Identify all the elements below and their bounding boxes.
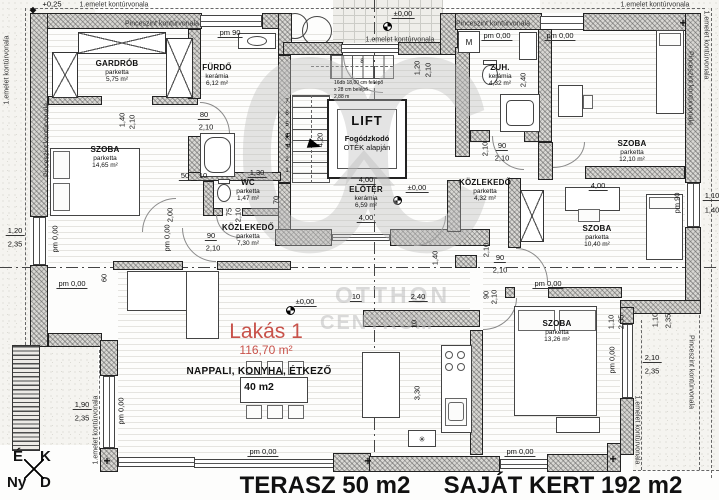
room-name: SZOBA: [91, 146, 120, 155]
wardrobe-icon: [52, 52, 78, 98]
room-name: GARDRÓB: [96, 60, 139, 69]
room-label: SZOBAparketta12,10 m²: [618, 140, 647, 163]
room-area: 4,32 m²: [459, 195, 511, 202]
dim-label: ±0,00: [294, 297, 317, 307]
dim-label: pm 0,00: [163, 224, 172, 251]
washbasin-bowl: [247, 36, 267, 46]
dim-label: ±0,00: [392, 9, 415, 19]
survey-cross-icon: +: [103, 454, 110, 468]
room-label: KÖZLEKEDŐparketta4,32 m²: [459, 179, 511, 202]
dim-label: 60: [100, 274, 109, 282]
room-floor: parketta: [96, 69, 139, 76]
room-label: SZOBAparketta13,26 m²: [543, 320, 572, 343]
room-floor: kerámia: [488, 73, 511, 80]
dim-label: 2,10: [482, 243, 491, 258]
stair-number: 3: [285, 145, 288, 151]
room-area: 5,75 m²: [96, 76, 139, 83]
wardrobe-icon: [520, 190, 544, 242]
dim-label: 90: [494, 253, 506, 263]
lift-note: OTÉK alapján: [344, 143, 391, 152]
wall-segment: [538, 29, 552, 142]
compass-north: É: [13, 448, 23, 465]
contour-label: Pinceszint kontúrvonala: [688, 335, 695, 409]
shower-tray-inner: [506, 100, 534, 126]
dim-label: 10: [410, 320, 419, 328]
dim-label: 2,40: [409, 292, 428, 302]
dim-label: pm 0,00: [504, 447, 535, 457]
dim-label: pm 90: [673, 193, 682, 214]
room-floor: parketta: [91, 155, 120, 162]
wardrobe-icon: [166, 38, 193, 98]
survey-cross-icon: +: [609, 452, 616, 466]
apartment-title: Lakás 1: [229, 320, 303, 344]
contour-label: Pinceszint kontúrvonala: [125, 21, 199, 28]
contour-label: 1.emelet kontúrvonala: [634, 396, 641, 465]
wall-segment: [30, 265, 48, 347]
room-name: FÜRDŐ: [202, 64, 231, 73]
wall-segment: [470, 130, 490, 142]
section-line-horizontal: [0, 267, 719, 268]
cooktop-burner-icon: [457, 351, 465, 359]
cooktop-burner-icon: [445, 351, 453, 359]
room-area: 7,30 m²: [222, 240, 274, 247]
window: [622, 324, 633, 398]
living-room-label: NAPPALI, KONYHA, ÉTKEZŐ: [186, 366, 331, 377]
dim-label: 2,35: [617, 315, 626, 330]
room-area: 6,12 m²: [202, 80, 231, 87]
dim-label: 2,10: [495, 154, 510, 163]
dim-label: +0,25: [43, 0, 62, 9]
wall-segment: [398, 42, 442, 55]
wall-segment: [369, 456, 500, 472]
room-floor: parketta: [618, 149, 647, 156]
room-label: WCparketta1,47 m²: [236, 179, 260, 202]
dim-label: pm 0,00: [56, 279, 87, 289]
washing-machine-label: M: [466, 38, 473, 47]
window: [33, 217, 46, 265]
terrace-window: [500, 459, 548, 469]
dim-label: 10: [197, 171, 209, 181]
pillow: [53, 183, 70, 211]
pillow: [659, 33, 681, 46]
entry-threshold: [332, 234, 390, 241]
room-area: 14,65 m²: [91, 162, 120, 169]
dim-label: 70: [272, 196, 281, 204]
bathtub-inner: [204, 137, 231, 173]
dim-label: 2,10: [199, 123, 214, 132]
dim-label: 1,30: [248, 168, 267, 178]
room-name: SZOBA: [543, 320, 572, 329]
dim-label: 75: [225, 208, 234, 216]
level-marker-icon: [286, 306, 295, 315]
wall-segment: [363, 310, 480, 327]
terrace-window: [118, 457, 195, 467]
dim-label: 2,10: [128, 115, 137, 130]
survey-cross-icon: +: [364, 454, 371, 468]
contour-label: 1.emelet kontúrvonala: [80, 2, 149, 9]
room-name: SZOBA: [583, 225, 612, 234]
star-icon: ✳: [419, 435, 426, 444]
dim-label: pm 0,00: [481, 31, 512, 41]
dim-label: 2,10: [643, 353, 662, 363]
room-area: 4,32 m²: [488, 80, 511, 87]
contour-label: 1.emelet kontúrvonala: [703, 11, 710, 80]
dim-label: 1,40: [118, 113, 127, 128]
room-floor: parketta: [459, 188, 511, 195]
dim-label: 90: [496, 141, 508, 151]
dim-label: 1,40: [705, 206, 719, 215]
room-label: ELŐTÉRkerámia6,59 m²: [349, 186, 383, 209]
lift-label: LIFT: [351, 113, 382, 128]
kitchen-sink-inner: [448, 402, 464, 421]
wall-segment: [113, 261, 183, 270]
dim-label: 50: [179, 171, 191, 181]
room-name: KÖZLEKEDŐ: [222, 224, 274, 233]
stair-number: 2: [285, 157, 288, 163]
dim-label: pm 0,00: [544, 31, 575, 41]
room-name: SZOBA: [618, 140, 647, 149]
cabinet: [519, 32, 537, 60]
wall-segment: [620, 398, 634, 455]
wall-segment: [242, 208, 281, 216]
dim-label: 2,40: [519, 73, 528, 88]
stair-number: 6: [285, 111, 288, 117]
deck-boards: [12, 345, 40, 451]
chair: [246, 405, 262, 419]
side-table: ✳: [408, 430, 436, 447]
wall-segment: [275, 229, 332, 246]
corner-marker-icon: ◆: [30, 5, 37, 16]
level-marker-icon: [393, 196, 402, 205]
dim-label: 1,90: [73, 400, 92, 410]
wall-segment: [278, 183, 291, 233]
dim-label: pm 0,00: [608, 346, 617, 373]
contour-label: Pinceszint kontúrvonala: [44, 103, 51, 177]
contour-label: 1.emelet kontúrvonala: [4, 36, 11, 105]
garden-label: SAJÁT KERT 192 m2: [444, 472, 683, 500]
dim-label: 2,10: [493, 266, 508, 275]
room-name: ELŐTÉR: [349, 186, 383, 195]
dim-label: 4,00: [357, 175, 376, 185]
stairs-note: 2,88 m: [334, 94, 349, 100]
stairs-note: 16db 18,00 cm fellépő: [334, 80, 383, 86]
wall-segment: [585, 166, 685, 179]
level-marker-icon: [383, 22, 392, 31]
desk: [558, 85, 583, 117]
contour-label: 1.emelet kontúrvonala: [366, 37, 435, 44]
wall-segment: [217, 261, 291, 270]
room-label: FÜRDŐkerámia6,12 m²: [202, 64, 231, 87]
window: [200, 15, 262, 27]
dim-label: pm 0,00: [51, 225, 60, 252]
dim-label: pm 0,00: [247, 447, 278, 457]
room-area: 1,47 m²: [236, 195, 260, 202]
contour-label: Pinceszint kontúrvonala: [687, 51, 694, 125]
wall-segment: [583, 13, 687, 31]
room-floor: kerámia: [202, 73, 231, 80]
dim-label: 4,20: [316, 133, 325, 148]
room-label: ZUH.kerámia4,32 m²: [488, 64, 511, 87]
terrace-window: [194, 459, 334, 468]
stairs-walk-line: [311, 66, 393, 67]
dim-label: 2,10: [206, 244, 221, 253]
dim-label: 2,35: [8, 240, 23, 249]
chair: [583, 95, 593, 109]
compass-cross-icon: [24, 459, 44, 479]
stair-number: 8: [360, 59, 363, 65]
contour-label: Pinceszint kontúrvonala: [456, 21, 530, 28]
dim-label: 2,35: [664, 314, 673, 329]
dim-label: 2,10: [481, 142, 490, 157]
cooktop-burner-icon: [457, 363, 465, 371]
dim-label: pm 0,00: [117, 397, 126, 424]
dim-label: 4,00: [589, 181, 608, 191]
room-area: 10,40 m²: [583, 241, 612, 248]
apartment-area: 116,70 m²: [239, 343, 292, 357]
window: [540, 16, 584, 30]
room-area: 6,59 m²: [349, 202, 383, 209]
dim-label: 2,00: [166, 208, 175, 223]
cooktop-burner-icon: [445, 363, 453, 371]
dim-label: 1,20: [413, 61, 422, 76]
dim-label: 10: [350, 292, 362, 302]
room-label: SZOBAparketta14,65 m²: [91, 146, 120, 169]
room-label: SZOBAparketta10,40 m²: [583, 225, 612, 248]
contour-label: 1.emelet kontúrvonala: [93, 396, 100, 465]
wall-segment: [278, 55, 291, 183]
stair-number: 7: [285, 99, 288, 105]
contour-label: 1.emelet kontúrvonala: [621, 2, 690, 9]
sofa-chaise: [186, 271, 219, 339]
room-floor: parketta: [222, 233, 274, 240]
dim-label: ±0,00: [406, 183, 429, 193]
room-floor: parketta: [543, 329, 572, 336]
stairs-note: x 28 cm belépő: [334, 87, 368, 93]
living-room-area: 40 m2: [244, 381, 274, 393]
dim-label: pm 0,00: [532, 279, 563, 289]
room-name: WC: [236, 179, 260, 188]
room-name: KÖZLEKEDŐ: [459, 179, 511, 188]
dim-label: 4,00: [357, 213, 376, 223]
kitchen-island: [362, 352, 400, 418]
dim-label: 2,10: [424, 63, 433, 78]
room-label: GARDRÓBparketta5,75 m²: [96, 60, 139, 83]
stair-number: 4: [285, 134, 288, 140]
survey-cross-icon: +: [679, 16, 686, 30]
dim-label: 2,10: [234, 208, 243, 223]
dim-label: 1,10: [703, 191, 719, 201]
dim-label: 1,40: [431, 251, 440, 266]
wall-segment: [48, 333, 102, 347]
lift-note-bold: Fogódzkodó: [345, 134, 390, 143]
dim-label: 2,10: [490, 290, 499, 305]
wall-segment: [455, 47, 470, 157]
room-area: 13,26 m²: [543, 336, 572, 343]
washing-machine: M: [458, 31, 480, 53]
wall-segment: [100, 340, 118, 376]
window: [103, 376, 115, 448]
wall-segment: [283, 42, 343, 55]
dim-label: 2,35: [645, 367, 660, 376]
chair: [578, 209, 600, 222]
room-floor: kerámia: [349, 195, 383, 202]
terrace-label: TERASZ 50 m2: [240, 472, 411, 500]
stair-number: 1: [285, 168, 288, 174]
dim-label: 90: [205, 231, 217, 241]
dresser: [556, 417, 600, 433]
stair-number: 5: [285, 122, 288, 128]
wardrobe-icon: [78, 32, 166, 54]
dim-label: 1,10: [607, 315, 616, 330]
dim-label: 80: [198, 110, 210, 120]
wall-segment: [538, 142, 553, 180]
toilet: [217, 184, 231, 202]
room-label: KÖZLEKEDŐparketta7,30 m²: [222, 224, 274, 247]
dim-label: 3,30: [413, 386, 422, 401]
dim-label: pm 90: [218, 28, 243, 38]
room-floor: parketta: [583, 234, 612, 241]
wall-segment: [505, 287, 515, 298]
pillow: [53, 151, 70, 179]
room-area: 12,10 m²: [618, 156, 647, 163]
chair: [267, 405, 283, 419]
room-name: ZUH.: [488, 64, 511, 73]
dim-label: 1,10: [651, 313, 660, 328]
wall-segment: [455, 255, 477, 268]
dim-label: 1,20: [6, 226, 25, 236]
floor-plan: M ✳ + + + + ◆ OC OTTHON CENTRUM LIFT Fog: [0, 0, 719, 500]
room-floor: parketta: [236, 188, 260, 195]
chair: [288, 405, 304, 419]
wall-segment: [547, 454, 609, 472]
window: [687, 183, 700, 227]
compass: É K Ny D: [4, 446, 64, 498]
dim-label: 2,35: [75, 414, 90, 423]
